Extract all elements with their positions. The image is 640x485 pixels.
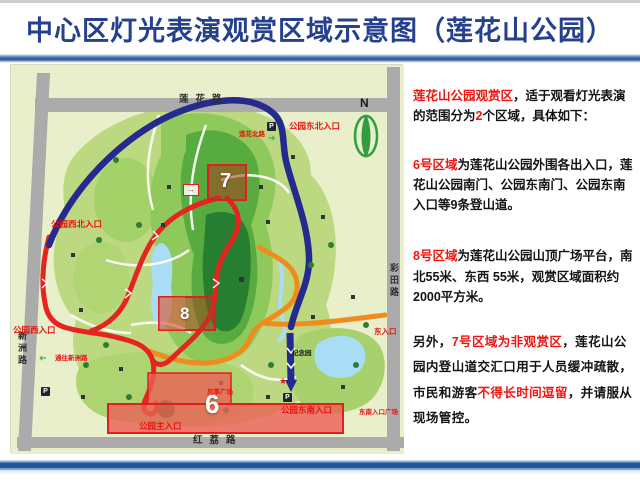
zone-8-number: 8 [180, 305, 189, 322]
park-map: 莲花路 新洲路 彩田路 红荔路 N 公园东北入口 莲花北路 公园西北入口 公园西… [10, 64, 403, 453]
road-label-lianhua: 莲花路 [179, 95, 229, 105]
caitian-road [387, 67, 400, 451]
zone-6-number: 6 [205, 391, 219, 417]
label-southeast-entrance: 公园东南入口 [281, 406, 332, 415]
zone-7-number: 7 [220, 171, 231, 191]
label-main-entrance: 公园主入口 [139, 422, 182, 431]
zone6-highlight: 6号区域 [413, 158, 457, 172]
zone-7-pointer-icon: → [183, 184, 199, 196]
road-label-xinzhou: 新洲路 [17, 331, 26, 367]
title-divider-ribbon [0, 54, 640, 64]
label-west-entrance: 公园西入口 [13, 326, 56, 335]
green-arrow-east-icon: ➔ [268, 134, 276, 143]
paragraph-overview: 莲花山公园观赏区，适于观看灯光表演的范围分为2个区域，具体如下： [413, 86, 636, 127]
road-label-hongli: 红荔路 [193, 436, 243, 446]
star-marker-icon: ★ [279, 377, 287, 386]
green-arrow-west-icon: ➔ [39, 354, 47, 363]
paragraph-zone8: 8号区域为莲花山公园山顶广场平台，南北55米、东西 55米，观赏区域面积约200… [413, 246, 636, 307]
label-southeast-plaza: 东南入口广场 [359, 410, 398, 417]
label-to-xinzhou-road: 通往新洲路 [55, 356, 88, 363]
zone7-highlight: 7号区域为非观赏区 [452, 335, 563, 349]
road-label-caitian: 彩田路 [389, 263, 398, 299]
bottom-ribbon [0, 459, 640, 474]
slide: { "header": { "title": "中心区灯光表演观赏区域示意图（莲… [0, 0, 640, 485]
page-title: 中心区灯光表演观赏区域示意图（莲花山公园） [0, 9, 640, 48]
no-linger-highlight: 不得长时间逗留 [478, 386, 568, 400]
parking-icon-north: P [267, 122, 276, 131]
page-top-edge [0, 0, 640, 3]
description-panel: 莲花山公园观赏区，适于观看灯光表演的范围分为2个区域，具体如下： 6号区域为莲花… [413, 86, 636, 431]
zone8-highlight: 8号区域 [413, 249, 457, 263]
compass-north-letter: N [360, 97, 369, 109]
label-east-entrance: 东入口 [374, 328, 397, 336]
parking-icon-southwest: P [41, 387, 50, 396]
paragraph-zone6: 6号区域为莲花山公园外围各出入口，莲花山公园南门、公园东南门、公园东南入口等9条… [413, 155, 636, 216]
label-north-road: 莲花北路 [239, 132, 265, 139]
label-northeast-entrance: 公园东北入口 [289, 122, 340, 131]
parking-icon-south: P [283, 393, 292, 402]
label-northwest-entrance: 公园西北入口 [51, 220, 102, 229]
paragraph-zone7: 另外，7号区域为非观赏区，莲花山公园内登山道交汇口用于人员缓冲疏散，市民和游客不… [413, 330, 636, 431]
overview-highlight: 莲花山公园观赏区 [413, 89, 513, 103]
label-memorial-garden: 纪念园 [292, 351, 312, 358]
